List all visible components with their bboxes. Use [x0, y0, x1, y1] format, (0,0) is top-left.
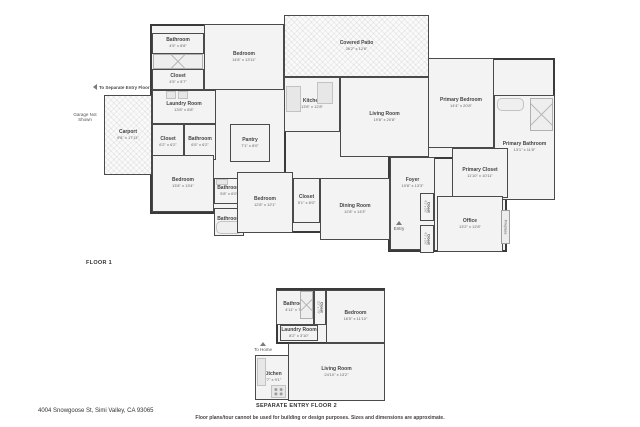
- room-pantry: Pantry 7'1" x 8'0": [230, 124, 270, 162]
- room-label: Primary Closet 11'10" x 10'11": [462, 168, 497, 178]
- room-primary-closet: Primary Closet 11'10" x 10'11": [452, 148, 508, 198]
- room-label: Closet 6'2" x 6'2": [159, 137, 177, 147]
- room-f2-laundry: Laundry Room 8'2" x 3'10": [280, 325, 318, 341]
- shower-fixture: [300, 291, 313, 319]
- room-label: Bathroom 6'5" x 6'2": [188, 137, 212, 147]
- shower-fixture: [530, 98, 553, 131]
- room-label: Pantry 7'1" x 8'0": [241, 138, 259, 148]
- floor1-caption: FLOOR 1: [86, 260, 112, 266]
- room-closet-foyer-2: Closet 4'1" x 2'6": [420, 225, 434, 253]
- room-closet-top-left: Closet 4'5" x 5'7": [152, 69, 204, 90]
- room-f2-living: Living Room 24'10" x 13'2": [288, 343, 385, 401]
- entry-arrow-icon: [396, 221, 402, 225]
- to-separate-entry-note: To Separate Entry Floor 2: [93, 84, 153, 90]
- room-carport: Carport 9'8" x 17'11": [104, 95, 152, 175]
- to-home-arrow-icon: [260, 342, 266, 346]
- room-office: Office 13'2" x 12'8": [437, 196, 503, 252]
- room-label: Kitchen 7'7" x 9'1": [263, 372, 281, 382]
- floor2-caption: SEPARATE ENTRY FLOOR 2: [256, 403, 337, 409]
- to-home-label: To Home: [254, 347, 272, 352]
- room-label: Living Room 19'8" x 20'8": [369, 112, 399, 122]
- room-label: Bathroom 4'5" x 8'8": [166, 38, 190, 48]
- room-label: Primary Bathroom 13'1" x 11'8": [503, 142, 547, 152]
- fireplace-label: Fireplace: [501, 210, 510, 244]
- room-label: Dining Room 12'8" x 14'3": [339, 204, 370, 214]
- room-primary-bedroom: Primary Bedroom 14'4" x 20'8": [428, 58, 494, 148]
- to-home-note: To Home: [250, 342, 276, 352]
- stove-fixture: [271, 385, 286, 398]
- room-label: Closet 5'1" x 8'0": [298, 195, 316, 205]
- room-label: Primary Bedroom 14'4" x 20'8": [440, 98, 482, 108]
- shower-fixture: [153, 54, 203, 69]
- kitchen-counter-fixture: [257, 358, 266, 386]
- garage-note: Garage Not Shown: [70, 112, 100, 123]
- room-label: Foyer 10'8" x 13'3": [402, 178, 424, 188]
- room-label: Living Room 24'10" x 13'2": [321, 367, 351, 377]
- room-label: Bedroom 12'8" x 12'1": [254, 197, 276, 207]
- room-living: Living Room 19'8" x 20'8": [340, 77, 429, 157]
- floorplan-canvas: Covered Patio 36'2" x 12'6" Bedroom 14'8…: [0, 0, 640, 427]
- garage-note-label: Garage Not Shown: [70, 112, 100, 123]
- arrow-left-icon: [93, 84, 97, 90]
- kitchen-counter-fixture: [286, 86, 301, 112]
- room-label: Closet 2'2" x 7'5": [316, 301, 323, 314]
- room-bedroom-bottom-mid: Bedroom 12'8" x 12'1": [237, 172, 293, 233]
- room-label: Covered Patio 36'2" x 12'6": [340, 41, 374, 51]
- room-label: Bedroom 13'8" x 13'4": [172, 178, 194, 188]
- room-label: Bedroom 14'8" x 13'11": [232, 52, 256, 62]
- room-label: Bedroom 16'5" x 11'10": [344, 311, 368, 321]
- room-bedroom-mid-left: Bedroom 13'8" x 13'4": [152, 155, 214, 212]
- entry-label: Entry: [394, 226, 405, 231]
- room-closet-foyer-1: Closet 4'1" x 2'6": [420, 193, 434, 221]
- kitchen-island-fixture: [317, 82, 333, 104]
- property-address: 4004 Snowgoose St, Simi Valley, CA 93065: [38, 408, 154, 414]
- dryer-fixture: [178, 91, 188, 99]
- room-dining: Dining Room 12'8" x 14'3": [320, 178, 390, 240]
- washer-fixture: [166, 91, 176, 99]
- sink-fixture: [216, 179, 228, 185]
- room-closet-mid: Closet 5'1" x 8'0": [293, 178, 320, 223]
- room-bathroom-top-left: Bathroom 4'5" x 8'8": [152, 33, 204, 54]
- room-covered-patio: Covered Patio 36'2" x 12'6": [284, 15, 429, 77]
- room-label: Closet 4'1" x 2'6": [423, 200, 430, 213]
- bathtub-fixture: [497, 98, 524, 111]
- room-label: Closet 4'1" x 2'6": [423, 232, 430, 245]
- entry-note: Entry: [388, 221, 410, 231]
- room-label: Closet 4'5" x 5'7": [169, 74, 187, 84]
- to-separate-entry-label: To Separate Entry Floor 2: [99, 85, 153, 90]
- room-f2-closet: Closet 2'2" x 7'5": [314, 290, 326, 325]
- room-f2-bedroom: Bedroom 16'5" x 11'10": [326, 290, 385, 343]
- room-label: Office 13'2" x 12'8": [459, 219, 481, 229]
- room-bedroom-top: Bedroom 14'8" x 13'11": [204, 24, 284, 90]
- disclaimer-text: Floor plans/tour cannot be used for buil…: [0, 415, 640, 421]
- room-label: Laundry Room 13'8" x 8'8": [166, 102, 201, 112]
- room-label: Laundry Room 8'2" x 3'10": [281, 328, 316, 338]
- room-label: Carport 9'8" x 17'11": [117, 130, 139, 140]
